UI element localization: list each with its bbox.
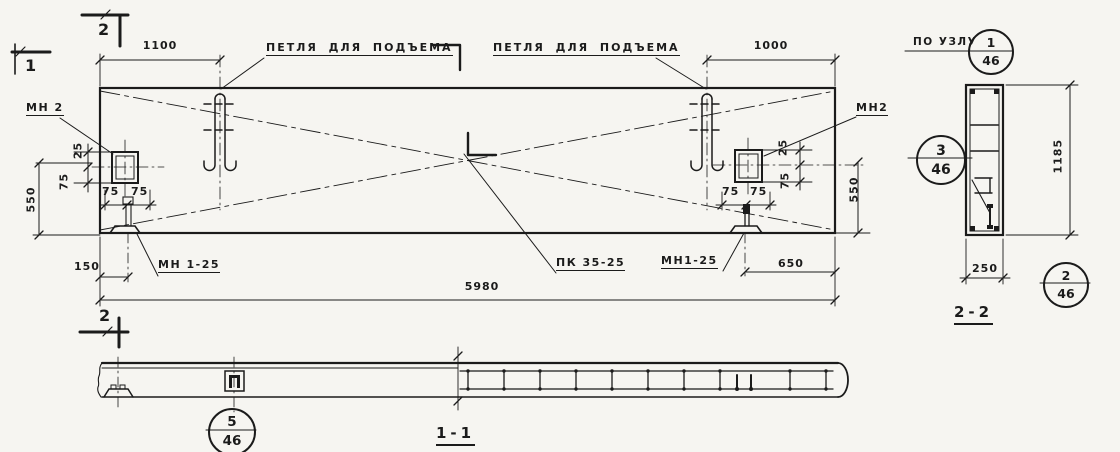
dim-1185: 1185: [1053, 142, 1064, 174]
dim-150: 150: [74, 261, 100, 272]
callout-2-46-num: 2: [1062, 270, 1071, 283]
embed-label-right: МН2: [856, 102, 888, 116]
callout-2-46-den: 46: [1057, 288, 1074, 301]
dim-25-right: 25: [778, 139, 789, 157]
section-mark-2-top: 2: [98, 22, 109, 38]
lifting-loop-label-left: ПЕТЛЯ ДЛЯ ПОДЪЕМА: [266, 42, 453, 56]
panel-mark-label: ПК 35-25: [556, 257, 625, 271]
dim-75-right-b: 75: [750, 186, 767, 197]
dim-550-right: 550: [849, 177, 860, 203]
drawing-linework: [0, 0, 1120, 452]
callout-1-46-den: 46: [982, 55, 999, 68]
section-mark-2-bottom: 2: [99, 308, 110, 324]
dim-75-left-vert: 75: [59, 173, 70, 191]
callout-3-46-num: 3: [936, 144, 946, 158]
section-2-2-title: 2-2: [954, 305, 993, 325]
embed-label-left: МН 2: [26, 102, 64, 116]
callout-5-46-den: 46: [223, 435, 242, 449]
section-mark-1-left: 1: [25, 58, 36, 74]
dim-250: 250: [967, 263, 1003, 274]
dim-550-left: 550: [26, 187, 37, 213]
callout-1-46: 1 46: [968, 29, 1014, 75]
dim-75-right-vert: 75: [780, 172, 791, 190]
callout-2-46: 2 46: [1043, 262, 1089, 308]
dim-1000: 1000: [746, 40, 796, 51]
dim-25-left: 25: [73, 142, 84, 160]
dim-75-left-a: 75: [102, 186, 119, 197]
callout-3-46: 3 46: [916, 135, 966, 185]
anchor-label-right: МН1-25: [661, 255, 718, 269]
callout-5-46-num: 5: [227, 416, 236, 430]
dim-650: 650: [778, 258, 804, 269]
section-1-1-title: 1-1: [436, 426, 475, 446]
anchor-label-left: МН 1-25: [158, 259, 220, 273]
dim-75-right-a: 75: [722, 186, 739, 197]
blueprint-sheet: 2 1 2 1100 1000 ПЕТЛЯ ДЛЯ ПОДЪЕМА ПЕТЛЯ …: [0, 0, 1120, 452]
dim-5980: 5980: [457, 281, 507, 292]
callout-3-46-den: 46: [931, 163, 950, 177]
dim-1100: 1100: [135, 40, 185, 51]
callout-5-46: 5 46: [208, 408, 256, 452]
callout-1-46-num: 1: [987, 37, 996, 50]
dim-75-left-b: 75: [131, 186, 148, 197]
lifting-loop-label-right: ПЕТЛЯ ДЛЯ ПОДЪЕМА: [493, 42, 680, 56]
rebar-dots: [229, 89, 999, 391]
